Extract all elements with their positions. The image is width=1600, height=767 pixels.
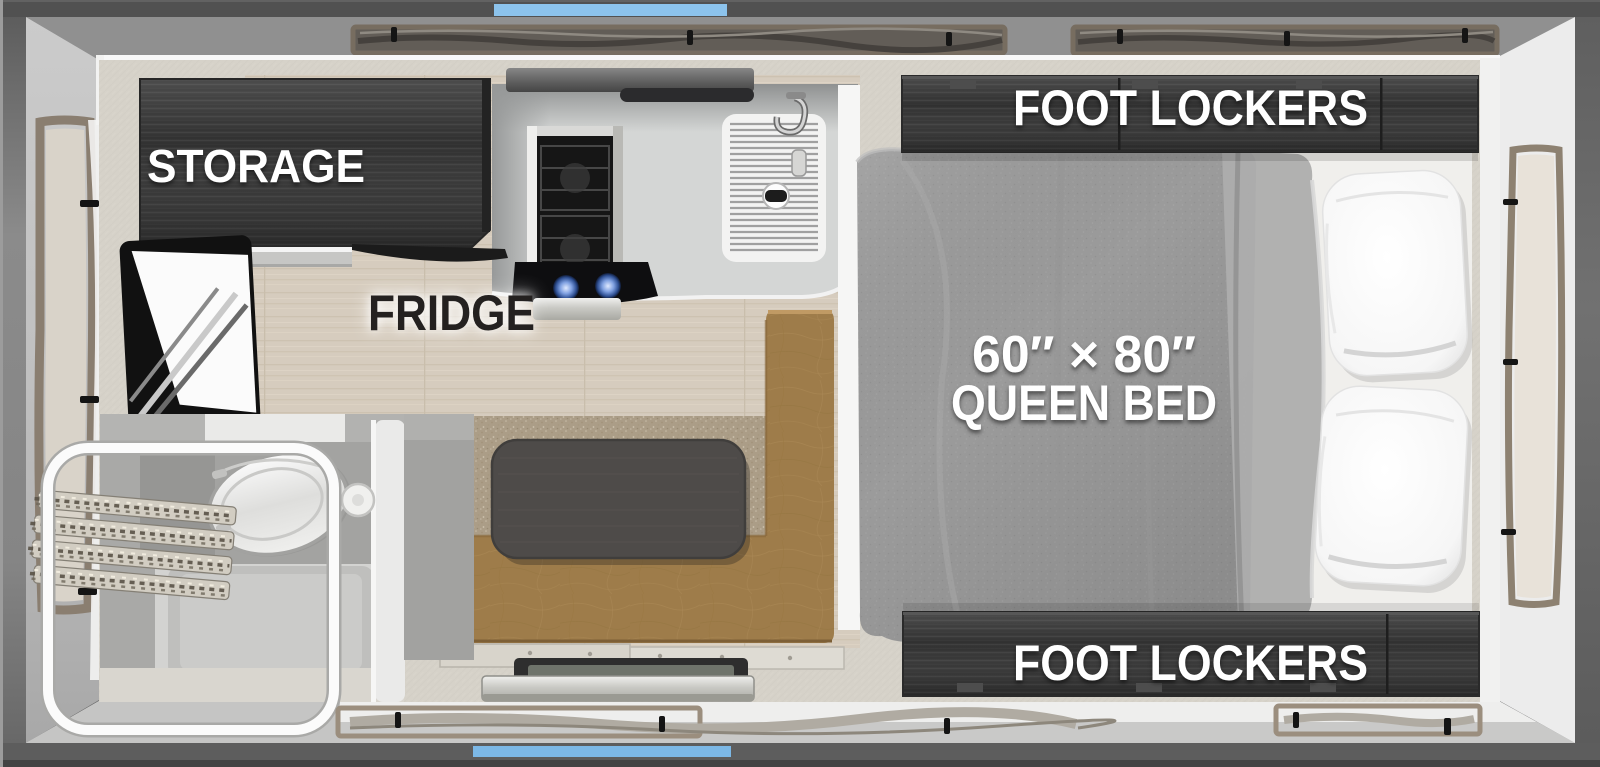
svg-text:STORAGE: STORAGE [147, 140, 365, 192]
svg-text:QUEEN BED: QUEEN BED [951, 375, 1217, 431]
svg-text:FOOT LOCKERS: FOOT LOCKERS [1013, 80, 1368, 136]
svg-text:FOOT LOCKERS: FOOT LOCKERS [1013, 635, 1368, 691]
svg-text:FRIDGE: FRIDGE [368, 285, 535, 341]
